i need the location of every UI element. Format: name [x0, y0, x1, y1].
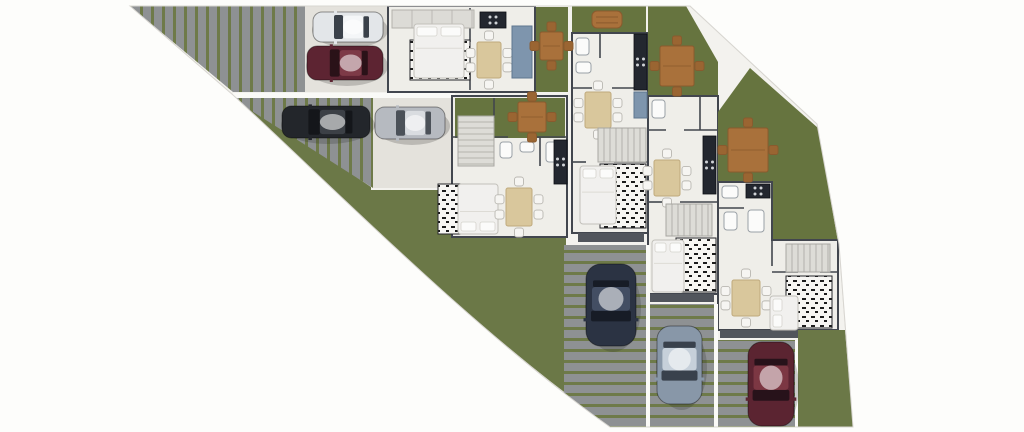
balcony-5: [720, 330, 798, 338]
sink-5: [722, 186, 738, 198]
garden-bench-3: [592, 11, 622, 28]
stairs-4: [666, 204, 712, 236]
car-maroon-top: [306, 44, 388, 86]
fence-1: [233, 93, 455, 98]
toilet-3: [576, 38, 589, 55]
stairs-2: [458, 116, 494, 166]
kitchen-counter-5: [746, 184, 770, 198]
bed-1: [414, 24, 464, 78]
bed-4: [652, 240, 684, 292]
bath-5: [748, 210, 764, 232]
yard-6: [798, 330, 853, 427]
balcony-3: [578, 233, 644, 242]
car-silver: [374, 105, 450, 145]
bed-3: [580, 166, 616, 224]
bed-5: [770, 296, 798, 330]
site-plan-canvas: [0, 0, 1024, 432]
fence-2: [646, 245, 650, 427]
kitchen-counter-4: [703, 136, 716, 194]
car-navy: [584, 264, 642, 352]
toilet-4: [652, 100, 665, 118]
floor-plan-page: [0, 0, 1024, 432]
fence-3: [714, 304, 718, 427]
car-steel-blue: [655, 326, 707, 410]
island-counter-1: [512, 26, 532, 78]
kitchen-counter-1: [480, 12, 506, 28]
balcony-4: [650, 294, 714, 302]
car-white: [312, 11, 388, 49]
stairs-5: [786, 244, 830, 272]
bed-2: [458, 184, 498, 234]
island-counter-3: [634, 92, 647, 118]
toilet-5: [724, 212, 737, 230]
kitchen-counter-2: [554, 140, 567, 184]
kitchen-counter-3: [634, 34, 647, 90]
car-maroon-bottom: [746, 342, 799, 432]
sink-3: [576, 62, 591, 73]
toilet-2: [500, 142, 512, 158]
car-black: [281, 104, 375, 144]
sink-2: [520, 142, 534, 152]
stairs-3: [598, 128, 646, 162]
